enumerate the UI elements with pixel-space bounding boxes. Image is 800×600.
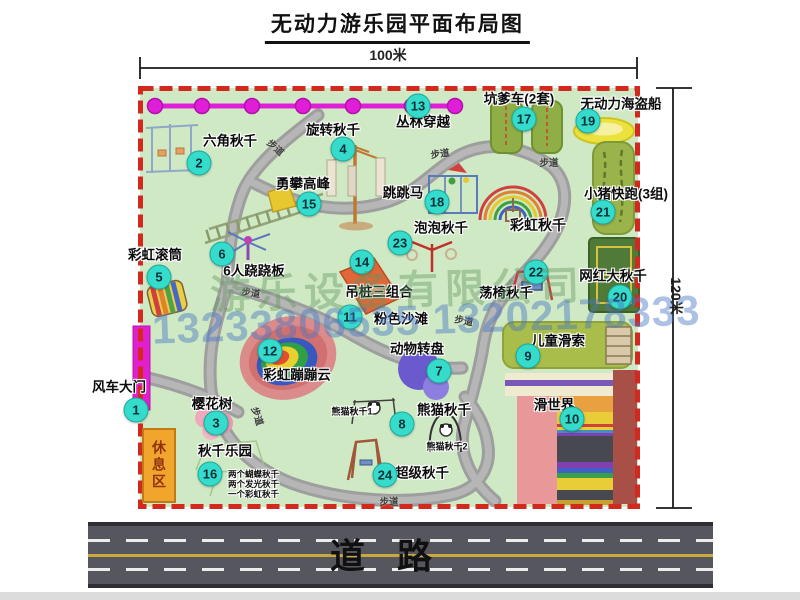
label-attraction-11: 粉色沙滩 — [374, 312, 428, 326]
walkway-label-4: 步道 — [241, 284, 262, 301]
marker-2: 2 — [187, 151, 212, 176]
walkway-label-5: 步道 — [248, 405, 267, 427]
marker-16: 16 — [198, 462, 223, 487]
label-attraction-12: 彩虹蹦蹦云 — [263, 368, 331, 382]
marker-7: 7 — [427, 359, 452, 384]
walkway-label-1: 步道 — [264, 135, 287, 158]
marker-12: 12 — [258, 339, 283, 364]
marker-23: 23 — [388, 231, 413, 256]
park-plan-page: 无动力游乐园平面布局图 100米 120米 — [0, 0, 800, 600]
marker-22: 22 — [524, 260, 549, 285]
marker-14: 14 — [350, 250, 375, 275]
marker-3: 3 — [204, 411, 229, 436]
walkway-label-7: 步道 — [379, 494, 398, 508]
marker-20: 20 — [608, 285, 633, 310]
marker-4: 4 — [331, 137, 356, 162]
label-attraction-9: 儿童滑索 — [531, 334, 585, 348]
walkway-label-2: 步道 — [430, 145, 451, 162]
label-swing-note-1: 两个蝴蝶秋千 — [228, 470, 279, 479]
marker-5: 5 — [147, 265, 172, 290]
label-attraction-24: 超级秋千 — [395, 466, 449, 480]
marker-10: 10 — [560, 407, 585, 432]
marker-21: 21 — [591, 200, 616, 225]
label-attraction-20: 网红大秋千 — [579, 269, 647, 283]
marker-11: 11 — [338, 305, 363, 330]
label-panda-swing-2: 熊猫秋千2 — [426, 443, 467, 452]
marker-15: 15 — [297, 192, 322, 217]
labels-overlay: 风车大门1六角秋千2樱花树3旋转秋千4彩虹滚筒56人跷跷板6动物转盘7熊猫秋千8… — [0, 0, 800, 600]
marker-18: 18 — [425, 190, 450, 215]
label-attraction-1: 风车大门 — [92, 380, 146, 394]
label-attraction-14: 吊桩三组合 — [345, 285, 413, 299]
label-attraction-22: 荡椅秋千 — [479, 286, 533, 300]
marker-1: 1 — [124, 398, 149, 423]
label-attraction-4: 旋转秋千 — [306, 123, 360, 137]
marker-6: 6 — [210, 242, 235, 267]
label-attraction-3: 樱花树 — [192, 397, 233, 411]
marker-19: 19 — [576, 109, 601, 134]
label-attraction-7: 动物转盘 — [390, 342, 444, 356]
label-attraction-16: 秋千乐园 — [198, 444, 252, 458]
label-attraction-21: 小猪快跑(3组) — [584, 187, 668, 201]
walkway-label-6: 步道 — [453, 311, 474, 328]
label-swing-note-3: 一个彩虹秋千 — [228, 490, 279, 499]
label-rainbow-swing: 彩虹秋千 — [510, 218, 566, 232]
label-attraction-23: 泡泡秋千 — [414, 221, 468, 235]
marker-13: 13 — [406, 94, 431, 119]
label-attraction-15: 勇攀高峰 — [276, 177, 330, 191]
walkway-label-3: 步道 — [539, 155, 558, 169]
label-attraction-5: 彩虹滚筒 — [128, 248, 182, 262]
marker-24: 24 — [373, 463, 398, 488]
label-attraction-18: 跳跳马 — [383, 186, 424, 200]
marker-17: 17 — [512, 107, 537, 132]
marker-9: 9 — [516, 344, 541, 369]
marker-8: 8 — [390, 412, 415, 437]
label-panda-swing-1: 熊猫秋千1 — [331, 408, 372, 417]
label-swing-note-2: 两个发光秋千 — [228, 480, 279, 489]
label-attraction-2: 六角秋千 — [203, 134, 257, 148]
label-attraction-17: 坑爹车(2套) — [484, 92, 555, 106]
label-attraction-6: 6人跷跷板 — [223, 264, 285, 278]
label-attraction-8: 熊猫秋千 — [417, 403, 471, 417]
